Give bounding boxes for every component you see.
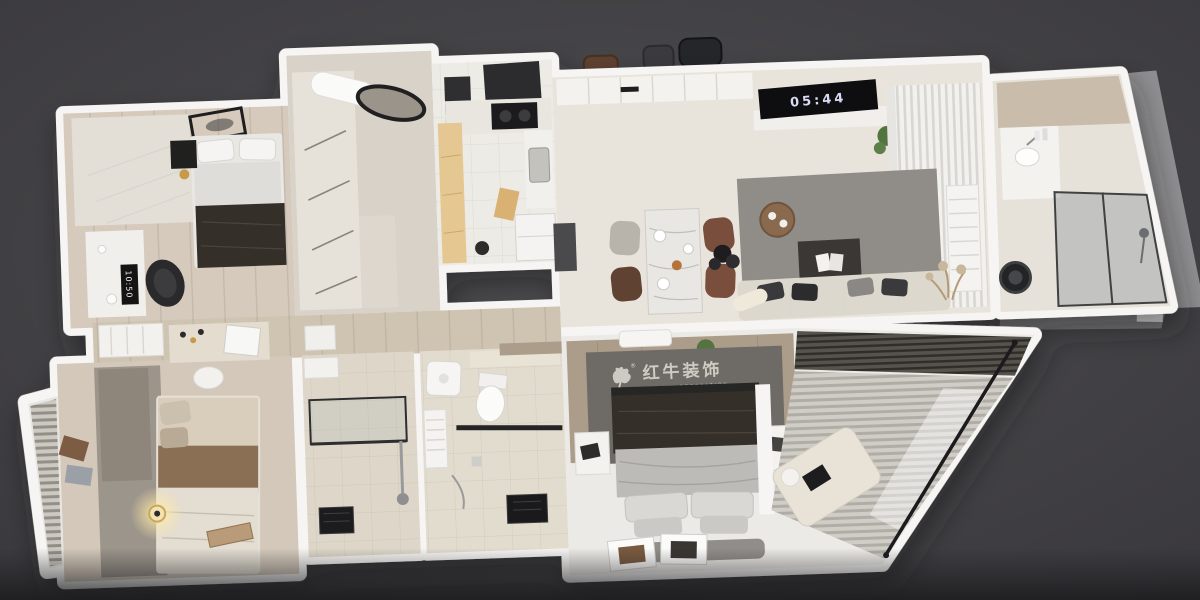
radiator [946,185,982,292]
low-cabinet [359,215,398,308]
cushion [847,277,875,297]
chair-back [679,38,722,67]
floor-drain [507,494,548,523]
round-coffee-table [760,202,795,237]
ledge [304,357,339,378]
shower-enclosure [1055,188,1167,306]
wardrobe [71,114,193,226]
floorplan-render: 10:50 [0,0,1200,600]
shower-rail [401,441,403,493]
cushion [881,278,908,297]
headboard-panel [98,368,152,482]
dining-chair [705,263,736,298]
island-counter [553,223,577,272]
sheet [615,445,761,498]
bottom-shade [0,548,1200,600]
range-hood [483,61,542,103]
door-handle-slot [621,87,639,93]
towel-radiator [424,409,448,468]
sink [529,148,550,183]
render-canvas: 10:50 [0,0,1200,600]
bed [156,396,260,574]
floor-drain [319,507,354,534]
blanket [158,446,258,492]
ac-unit [619,330,672,348]
logo-text: 红牛装饰 [642,359,723,384]
stool [193,366,224,389]
mirror [224,325,261,356]
bed [190,133,287,268]
entry-cabinet [99,323,164,357]
cushion [791,283,818,301]
cooktop [491,102,538,130]
desk-clock-time: 10:50 [124,270,134,298]
shelf [305,325,336,350]
trademark: ® [630,362,636,369]
dining-chair [609,220,641,256]
pillow [691,492,753,518]
wood-cabinet [438,123,467,264]
blanket [611,390,761,453]
basin [1015,148,1040,167]
glass-panel [309,397,406,444]
wall-outlet [471,456,481,466]
desk-clock: 10:50 [120,264,138,305]
blanket [195,203,286,268]
pillow [65,465,93,486]
wet-zone-edge [456,425,562,430]
pillow [160,427,189,449]
dining-chair [610,266,643,303]
pillow [700,516,748,534]
nightstand [170,140,197,169]
pillow [159,400,192,426]
